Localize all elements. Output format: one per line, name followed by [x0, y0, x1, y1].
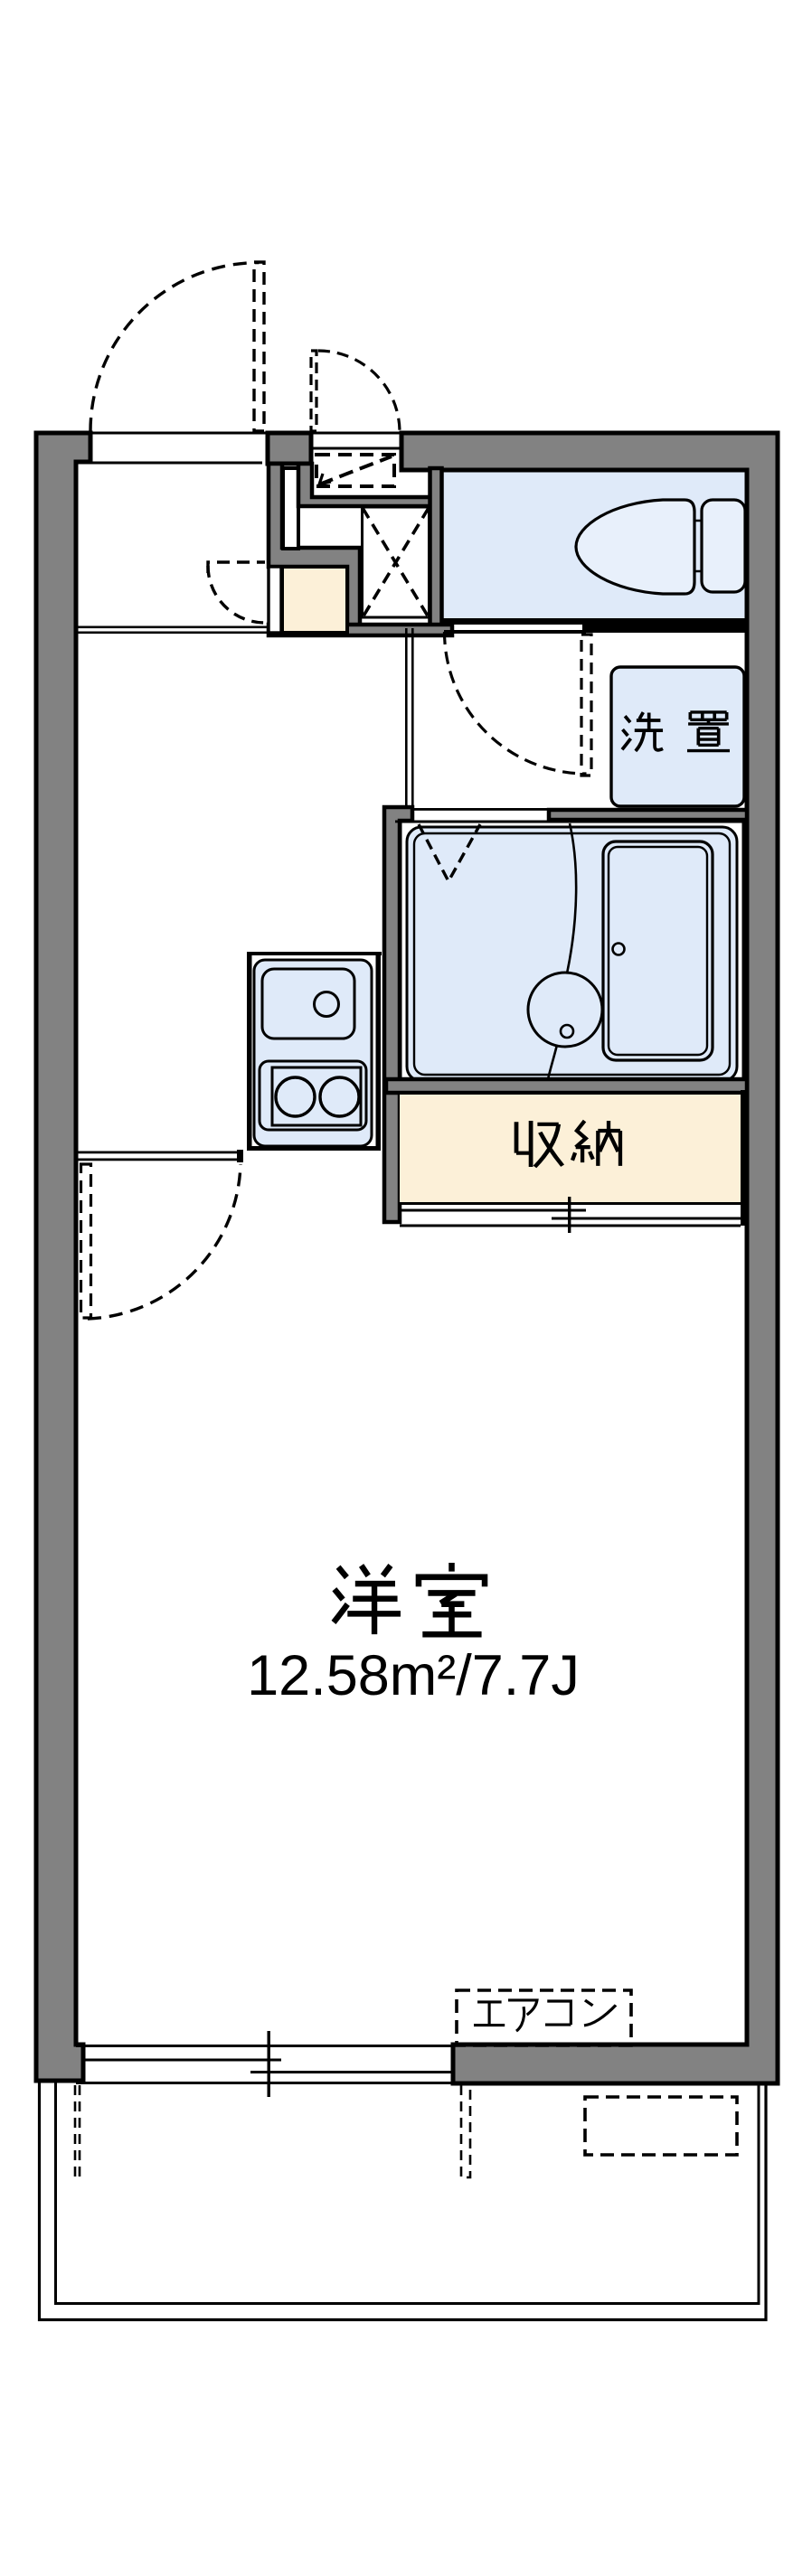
svg-text:12.58m²/7.7J: 12.58m²/7.7J — [247, 1644, 580, 1707]
